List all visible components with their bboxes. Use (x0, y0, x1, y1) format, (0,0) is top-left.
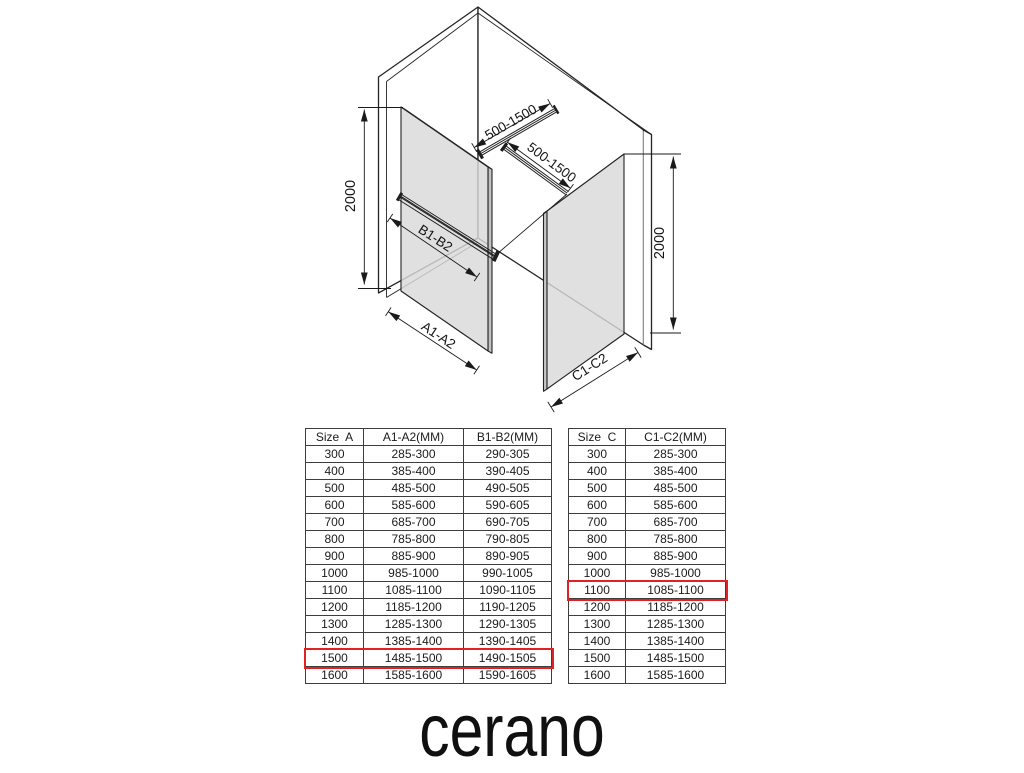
table-row: 12001185-1200 (569, 599, 726, 616)
table-cell: 300 (306, 446, 364, 463)
table-row: 600585-600 (569, 497, 726, 514)
dim-label-2000-right: 2000 (652, 227, 668, 259)
table-cell: 600 (306, 497, 364, 514)
table-cell: 1000 (306, 565, 364, 582)
table-cell: 900 (569, 548, 626, 565)
table-cell: 1600 (306, 667, 364, 684)
table-row: 12001185-12001190-1205 (306, 599, 552, 616)
table-row: 800785-800 (569, 531, 726, 548)
table-cell: 1600 (569, 667, 626, 684)
table-cell: 900 (306, 548, 364, 565)
col-header: Size A (306, 429, 364, 446)
table-cell: 1390-1405 (464, 633, 552, 650)
dim-label-2000-left: 2000 (343, 180, 359, 212)
table-row: 1000985-1000990-1005 (306, 565, 552, 582)
highlighted-row: 15001485-15001490-1505 (306, 650, 552, 667)
table-cell: 790-805 (464, 531, 552, 548)
table-row: 16001585-16001590-1605 (306, 667, 552, 684)
table-cell: 1585-1600 (364, 667, 464, 684)
table-row: 400385-400 (569, 463, 726, 480)
table-cell: 1000 (569, 565, 626, 582)
table-cell: 985-1000 (626, 565, 726, 582)
table-cell: 1500 (306, 650, 364, 667)
table-cell: 385-400 (364, 463, 464, 480)
table-cell: 1300 (569, 616, 626, 633)
table-cell: 400 (569, 463, 626, 480)
table-cell: 1400 (569, 633, 626, 650)
table-cell: 585-600 (364, 497, 464, 514)
table-cell: 1200 (306, 599, 364, 616)
table-cell: 1385-1400 (364, 633, 464, 650)
table-cell: 1185-1200 (626, 599, 726, 616)
table-row: 600585-600590-605 (306, 497, 552, 514)
table-cell: 785-800 (364, 531, 464, 548)
table-cell: 685-700 (364, 514, 464, 531)
col-header: C1-C2(MM) (626, 429, 726, 446)
table-cell: 1300 (306, 616, 364, 633)
table-cell: 1085-1100 (364, 582, 464, 599)
table-cell: 985-1000 (364, 565, 464, 582)
size-c-table: Size CC1-C2(MM) 300285-300400385-4005004… (568, 428, 726, 684)
table-row: 900885-900890-905 (306, 548, 552, 565)
table-cell: 385-400 (626, 463, 726, 480)
table-cell: 1485-1500 (364, 650, 464, 667)
table-cell: 800 (306, 531, 364, 548)
table-cell: 990-1005 (464, 565, 552, 582)
col-header: Size C (569, 429, 626, 446)
table-row: 15001485-1500 (569, 650, 726, 667)
table-row: 800785-800790-805 (306, 531, 552, 548)
table-row: 14001385-14001390-1405 (306, 633, 552, 650)
table-cell: 800 (569, 531, 626, 548)
table-cell: 500 (306, 480, 364, 497)
table-cell: 485-500 (364, 480, 464, 497)
table-row: 14001385-1400 (569, 633, 726, 650)
table-cell: 300 (569, 446, 626, 463)
size-a-header-row: Size AA1-A2(MM)B1-B2(MM) (306, 429, 552, 446)
table-cell: 400 (306, 463, 364, 480)
table-row: 11001085-11001090-1105 (306, 582, 552, 599)
table-cell: 1190-1205 (464, 599, 552, 616)
table-cell: 1290-1305 (464, 616, 552, 633)
table-row: 300285-300290-305 (306, 446, 552, 463)
table-cell: 290-305 (464, 446, 552, 463)
table-cell: 500 (569, 480, 626, 497)
table-cell: 1490-1505 (464, 650, 552, 667)
col-header: A1-A2(MM) (364, 429, 464, 446)
table-row: 400385-400390-405 (306, 463, 552, 480)
table-cell: 1590-1605 (464, 667, 552, 684)
table-row: 13001285-1300 (569, 616, 726, 633)
table-cell: 700 (569, 514, 626, 531)
table-cell: 885-900 (626, 548, 726, 565)
table-cell: 1100 (306, 582, 364, 599)
table-cell: 1100 (569, 582, 626, 599)
table-cell: 1085-1100 (626, 582, 726, 599)
table-cell: 485-500 (626, 480, 726, 497)
table-row: 300285-300 (569, 446, 726, 463)
table-cell: 1185-1200 (364, 599, 464, 616)
table-cell: 1285-1300 (626, 616, 726, 633)
table-cell: 285-300 (626, 446, 726, 463)
table-cell: 1090-1105 (464, 582, 552, 599)
table-row: 1000985-1000 (569, 565, 726, 582)
table-cell: 1485-1500 (626, 650, 726, 667)
table-row: 900885-900 (569, 548, 726, 565)
table-cell: 285-300 (364, 446, 464, 463)
size-a-table: Size AA1-A2(MM)B1-B2(MM) 300285-300290-3… (305, 428, 552, 684)
table-row: 500485-500 (569, 480, 726, 497)
table-cell: 685-700 (626, 514, 726, 531)
table-cell: 600 (569, 497, 626, 514)
size-c-header-row: Size CC1-C2(MM) (569, 429, 726, 446)
table-cell: 490-505 (464, 480, 552, 497)
table-cell: 1500 (569, 650, 626, 667)
table-cell: 890-905 (464, 548, 552, 565)
table-row: 16001585-1600 (569, 667, 726, 684)
table-cell: 690-705 (464, 514, 552, 531)
table-cell: 390-405 (464, 463, 552, 480)
table-cell: 1285-1300 (364, 616, 464, 633)
table-row: 500485-500490-505 (306, 480, 552, 497)
table-cell: 785-800 (626, 531, 726, 548)
table-cell: 885-900 (364, 548, 464, 565)
cerano-logo: cerano (92, 688, 932, 773)
highlighted-row: 11001085-1100 (569, 582, 726, 599)
table-cell: 700 (306, 514, 364, 531)
table-row: 13001285-13001290-1305 (306, 616, 552, 633)
table-row: 700685-700690-705 (306, 514, 552, 531)
table-cell: 585-600 (626, 497, 726, 514)
table-cell: 1585-1600 (626, 667, 726, 684)
col-header: B1-B2(MM) (464, 429, 552, 446)
table-cell: 1385-1400 (626, 633, 726, 650)
table-cell: 590-605 (464, 497, 552, 514)
table-row: 700685-700 (569, 514, 726, 531)
table-cell: 1400 (306, 633, 364, 650)
table-cell: 1200 (569, 599, 626, 616)
shower-enclosure-diagram: 2000 2000 500-1500 500-1500 B1-B2 A1-A2 … (330, 0, 724, 428)
